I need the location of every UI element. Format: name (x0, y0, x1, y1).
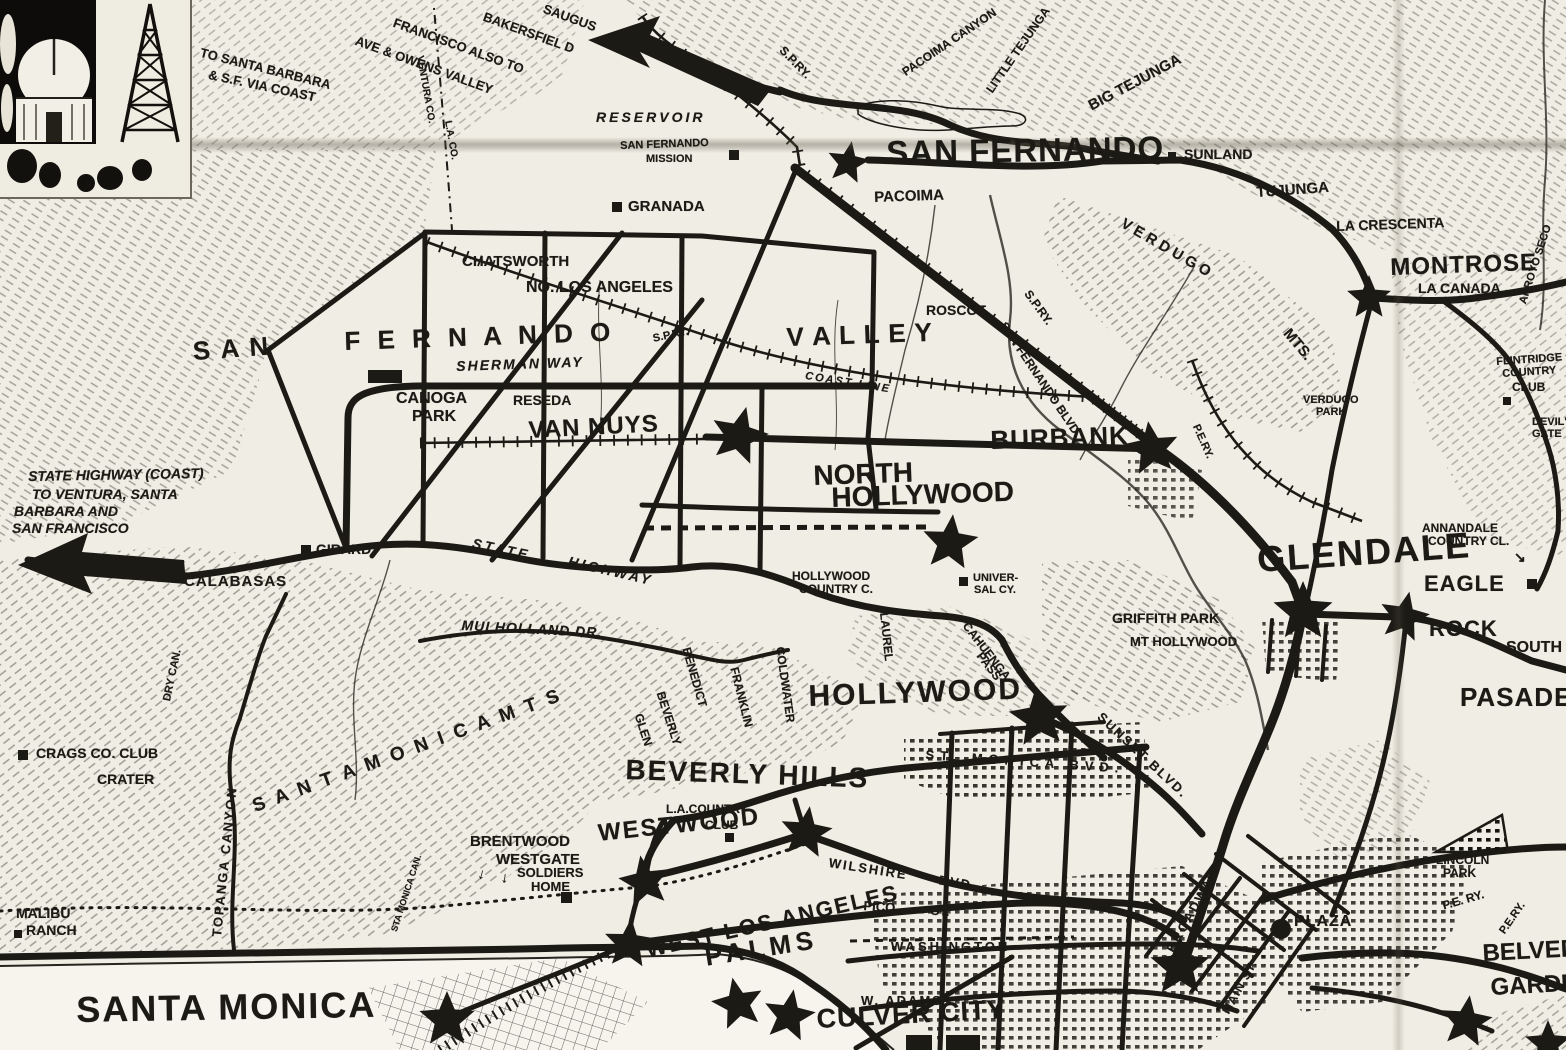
observatory-dome-icon (16, 39, 92, 142)
montrose-label: MONTROSE (1390, 251, 1537, 280)
lincoln-park-2-label: PARK (1443, 867, 1476, 879)
benedict-canyon-label: BENEDICT (680, 646, 708, 708)
route-saugus-label: SAUGUS (542, 2, 599, 33)
belvedere-1-label: BELVEDERE (1482, 934, 1566, 966)
devils-gate-1-label: DEVIL'S (1532, 417, 1566, 428)
san-fernando-mission-2-label: MISSION (646, 154, 692, 165)
hollywood-cc-1-label: HOLLYWOOD (792, 570, 870, 582)
sp-ry-saugus-label: S.P.RY. (777, 44, 813, 81)
culver-city-label: CULVER CITY (816, 996, 1006, 1033)
canoga-park-2-label: PARK (412, 409, 456, 425)
state-coast-3-label: BARBARA AND (14, 504, 118, 518)
south-label: SOUTH (1506, 640, 1562, 656)
chatsworth-label: CHATSWORTH (462, 254, 569, 269)
soldiers-home-2-label: HOME (531, 880, 570, 893)
universal-city-2-label: SAL CY. (974, 585, 1016, 596)
sp-ry-coast-label: S.P.RY. (652, 326, 690, 344)
verdugo-label: V E R D U G O (1119, 216, 1214, 279)
state-highway-1-label: STATE (471, 536, 531, 562)
state-highway-2-label: HIGHWAY (567, 554, 655, 587)
granada-label: GRANADA (628, 199, 705, 214)
westgate-arrow-2-label: ↓ (500, 870, 510, 886)
sherman-way-label: SHERMAN WAY (456, 355, 584, 373)
roscoe-label: ROSCOE (926, 303, 987, 317)
city-san-fernando-label: SAN FERNANDO (886, 131, 1164, 169)
main-st-label: MAIN ST. (1220, 958, 1259, 1016)
universal-city-1-label: UNIVER- (973, 573, 1018, 584)
verdugo-park-2-label: PARK (1316, 407, 1346, 418)
calabasas-label: CALABASAS (184, 574, 287, 589)
verdugo-mts-label: MTS. (1281, 326, 1316, 363)
valley-fernando-label: F E R N A N D O (344, 319, 616, 354)
crater-label: CRATER (97, 772, 154, 786)
la-country-club-2-label: CLUB (705, 819, 738, 831)
pe-ry-lincoln-label: P.E. RY. (1441, 888, 1485, 911)
map-labels-layer: TO SANTA BARBARA& S.F. VIA COASTSAUGUSBA… (0, 0, 1566, 1050)
valley-san-label: S A N (192, 333, 271, 364)
griffith-park-label: GRIFFITH PARK (1112, 611, 1219, 625)
sunset-blvd-label: SUNSET BLVD. (1095, 710, 1190, 800)
beverly-glen-2-label: GLEN (633, 712, 655, 747)
girard-label: GIRARD (316, 542, 371, 556)
pasadena-label: PASADENA (1460, 684, 1566, 710)
coast-line-label: COAST LINE (804, 371, 891, 395)
malibu-ranch-1-label: MALIBU (16, 906, 70, 920)
santa-monica-mts-label: S A N T A M O N I C A M T S (250, 686, 565, 816)
flintridge-3-label: CLUB (1512, 381, 1545, 393)
beverly-hills-label: BEVERLY HILLS (625, 756, 870, 792)
tujunga-label: TUJUNGA (1256, 180, 1329, 200)
annandale-arrow-label: ↘ (1514, 550, 1526, 564)
soldiers-home-1-label: SOLDIERS (517, 866, 583, 879)
dry-canyon-label: DRY CAN. (162, 649, 184, 703)
topanga-canyon-label: TOPANGA CANYON (210, 786, 239, 938)
la-canada-label: LA CANADA (1418, 281, 1501, 295)
pacoima-town-label: PACOIMA (874, 188, 944, 205)
hollywood-cc-2-label: COUNTRY C. (799, 583, 873, 595)
mt-hollywood-label: MT HOLLYWOOD (1130, 635, 1237, 648)
flintridge-2-label: COUNTRY (1502, 365, 1557, 380)
van-nuys-label: VAN NUYS (528, 412, 659, 443)
la-crescenta-label: LA CRESCENTA (1336, 215, 1445, 233)
lincoln-park-1-label: LINCOLN (1436, 854, 1489, 866)
annandale-1-label: ANNANDALE (1422, 522, 1498, 534)
state-coast-2-label: TO VENTURA, SANTA (32, 487, 178, 501)
eagle-label: EAGLE (1424, 573, 1505, 595)
san-fernando-mission-1-label: SAN FERNANDO (620, 138, 709, 152)
belvedere-2-label: GARDENS (1490, 970, 1566, 1000)
big-tejunga-label: BIG TEJUNGA (1086, 52, 1184, 113)
sunland-label: SUNLAND (1184, 147, 1252, 161)
valley-valley-label: V A L L E Y (786, 319, 933, 350)
no-los-angeles-label: NO. LOS ANGELES (526, 280, 673, 296)
la-country-club-1-label: L.A.COUNTRY (666, 803, 748, 815)
washington-st-label: WASHINGTON (891, 940, 1010, 953)
state-coast-1-label: STATE HIGHWAY (COAST) (28, 466, 204, 483)
reseda-label: RESEDA (513, 393, 571, 407)
wilshire-bvd-label: WILSHIRE BVD. (828, 856, 978, 892)
la-co-label: L.A. CO. (442, 120, 459, 161)
beverly-glen-1-label: BEVERLY (655, 690, 684, 747)
vintage-los-angeles-map: TO SANTA BARBARA& S.F. VIA COASTSAUGUSBA… (0, 0, 1566, 1050)
burbank-label: BURBANK (990, 422, 1129, 453)
mulholland-label: MULHOLLAND DR. (461, 618, 602, 639)
pe-ry-east-label: P.E.RY. (1498, 900, 1528, 936)
westgate-arrow-1-label: ↓ (476, 866, 487, 882)
observatory-inset (0, 0, 192, 199)
broadway-label: BROADWAY (1164, 867, 1220, 954)
sp-ry-valley-label: S.P.RY. (1022, 288, 1055, 327)
franklin-canyon-label: FRANKLIN (728, 666, 754, 728)
reservoir-label: RESERVOIR (596, 110, 705, 124)
state-coast-4-label: SAN FRANCISCO (12, 521, 129, 535)
brentwood-label: BRENTWOOD (470, 834, 570, 849)
crags-club-label: CRAGS CO. CLUB (36, 746, 158, 760)
santa-monica-city-label: SANTA MONICA (76, 987, 377, 1028)
laurel-canyon-label: LAUREL (878, 612, 895, 662)
st-monica-bvd-label: ST. MONICA BVD. (925, 748, 1125, 775)
devils-gate-2-label: GATE (1532, 429, 1562, 440)
verdugo-park-1-label: VERDUGO (1303, 395, 1359, 406)
plaza-label: PLAZA (1294, 914, 1352, 930)
annandale-2-label: COUNTRY CL. (1428, 535, 1509, 547)
pe-ry-verdugo-label: P.E.RY. (1190, 423, 1215, 460)
canoga-park-1-label: CANOGA (396, 391, 467, 407)
san-fernando-blvd-label: SAN FERNANDO BLVD. (998, 320, 1084, 439)
pacoima-canyon-label: PACOIMA CANYON (900, 6, 998, 78)
malibu-ranch-2-label: RANCH (26, 923, 77, 937)
rock-label: ROCK (1429, 618, 1498, 640)
north-hollywood-2-label: HOLLYWOOD (831, 478, 1014, 512)
sta-monica-canyon-label: STA MONICA CAN. (390, 854, 423, 933)
coldwater-canyon-label: COLDWATER (774, 646, 797, 723)
